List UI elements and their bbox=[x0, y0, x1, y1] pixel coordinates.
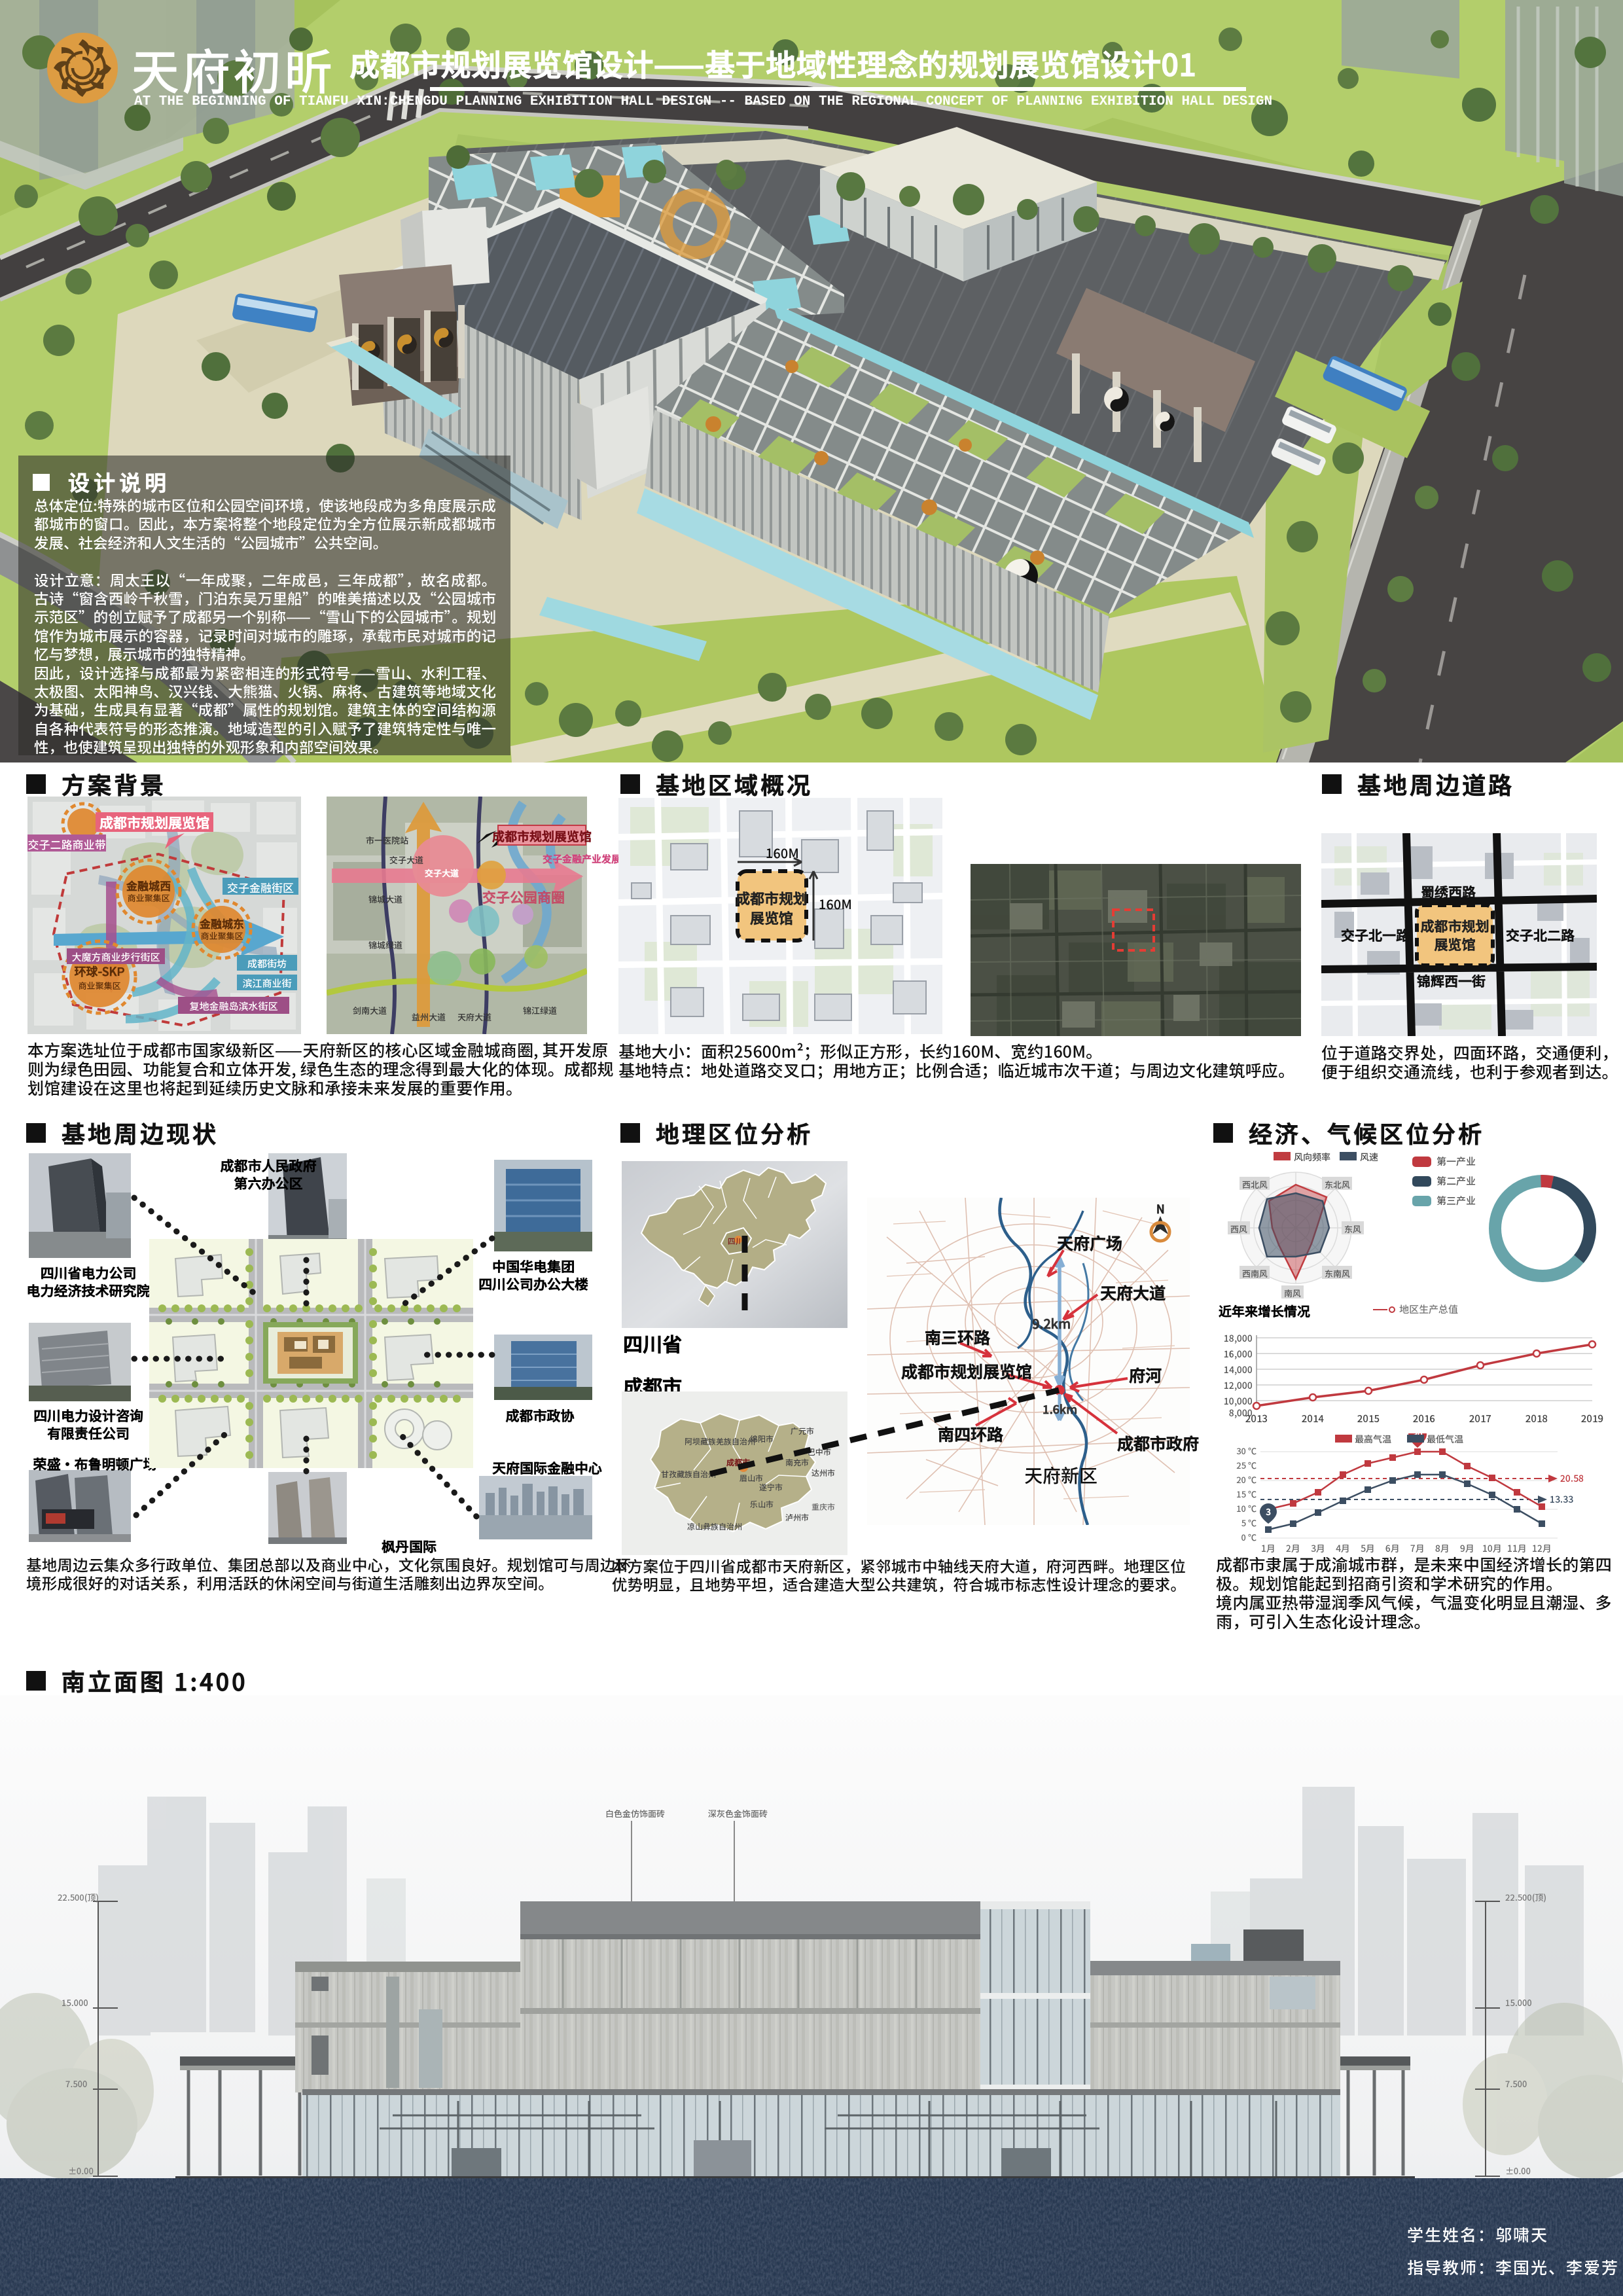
svg-text:±0.00: ±0.00 bbox=[68, 2164, 94, 2177]
svg-text:2015: 2015 bbox=[1357, 1412, 1380, 1426]
svg-text:±0.00: ±0.00 bbox=[1505, 2164, 1531, 2177]
svg-text:13.33: 13.33 bbox=[1550, 1493, 1573, 1506]
svg-text:2017: 2017 bbox=[1469, 1412, 1492, 1426]
svg-text:15.000: 15.000 bbox=[62, 1996, 89, 2009]
svg-text:12,000: 12,000 bbox=[1224, 1379, 1253, 1392]
svg-text:16,000: 16,000 bbox=[1224, 1348, 1253, 1361]
svg-text:7.500: 7.500 bbox=[65, 2077, 88, 2090]
svg-text:2016: 2016 bbox=[1413, 1412, 1435, 1426]
svg-text:2013: 2013 bbox=[1245, 1412, 1268, 1426]
svg-text:25 ℃: 25 ℃ bbox=[1236, 1459, 1257, 1471]
svg-text:30 ℃: 30 ℃ bbox=[1236, 1444, 1257, 1457]
svg-text:0 ℃: 0 ℃ bbox=[1241, 1531, 1257, 1543]
svg-text:20.58: 20.58 bbox=[1560, 1472, 1584, 1485]
svg-text:3: 3 bbox=[1266, 1505, 1271, 1518]
svg-text:20 ℃: 20 ℃ bbox=[1236, 1473, 1257, 1486]
svg-text:15 ℃: 15 ℃ bbox=[1236, 1488, 1257, 1500]
svg-text:5 ℃: 5 ℃ bbox=[1241, 1516, 1257, 1529]
svg-text:2014: 2014 bbox=[1302, 1412, 1325, 1426]
svg-text:160M: 160M bbox=[766, 843, 799, 862]
svg-text:10,000: 10,000 bbox=[1224, 1395, 1253, 1408]
svg-text:2018: 2018 bbox=[1525, 1412, 1548, 1426]
svg-text:7.500: 7.500 bbox=[1505, 2077, 1527, 2090]
svg-text:14,000: 14,000 bbox=[1224, 1363, 1253, 1376]
svg-text:10 ℃: 10 ℃ bbox=[1236, 1502, 1257, 1515]
svg-text:18,000: 18,000 bbox=[1224, 1332, 1253, 1345]
svg-text:2019: 2019 bbox=[1581, 1412, 1603, 1426]
svg-text:15.000: 15.000 bbox=[1505, 1996, 1533, 2009]
